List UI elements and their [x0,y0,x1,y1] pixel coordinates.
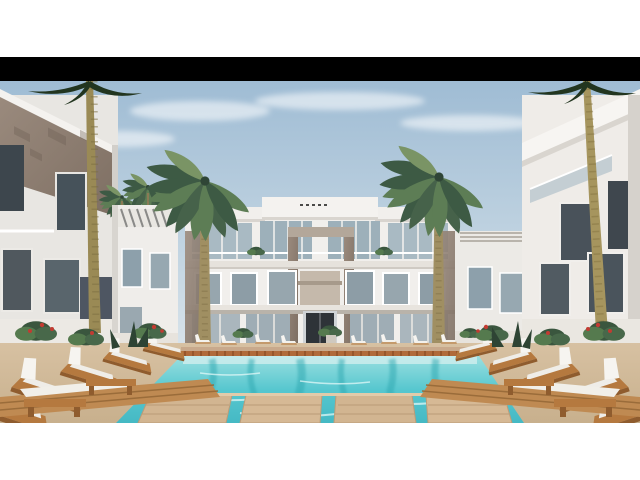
resort-render [0,81,640,423]
letterbox-bar [0,57,640,81]
screenshot-frame [0,0,640,480]
striped-pergola [118,209,170,227]
ground-floor [192,311,448,345]
resort-scene [0,81,640,423]
left-wing-building [0,89,118,345]
right-wing-building [522,89,640,345]
